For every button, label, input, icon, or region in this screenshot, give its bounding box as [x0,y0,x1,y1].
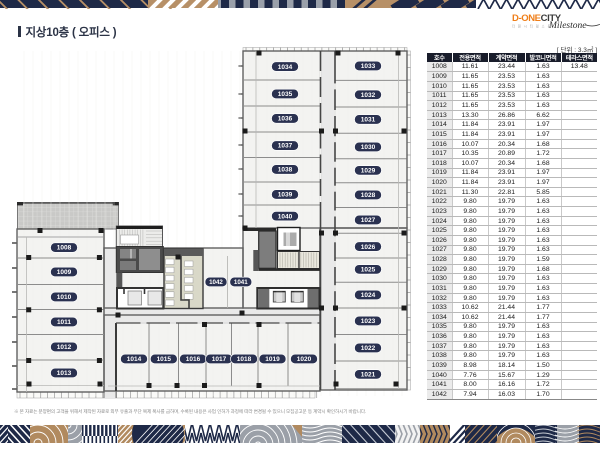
svg-text:1022: 1022 [361,345,376,352]
svg-text:1016: 1016 [186,356,201,363]
svg-text:1021: 1021 [361,372,376,379]
svg-text:1029: 1029 [361,168,376,175]
svg-text:1014: 1014 [127,356,142,363]
svg-text:1028: 1028 [361,192,376,199]
svg-text:1042: 1042 [209,279,223,286]
svg-text:1018: 1018 [237,356,252,363]
svg-text:1020: 1020 [297,356,312,363]
svg-text:1036: 1036 [278,116,293,123]
svg-text:1017: 1017 [212,356,227,363]
svg-text:1038: 1038 [278,167,293,174]
svg-text:1039: 1039 [278,192,293,199]
svg-text:1013: 1013 [57,370,72,377]
svg-text:1011: 1011 [57,319,71,326]
svg-text:1026: 1026 [361,244,376,251]
svg-text:1034: 1034 [278,64,293,71]
svg-text:1012: 1012 [57,344,72,351]
svg-text:1032: 1032 [361,92,376,99]
svg-text:1008: 1008 [57,245,72,252]
svg-text:1033: 1033 [361,63,376,70]
svg-text:1023: 1023 [361,318,376,325]
svg-text:1015: 1015 [157,356,172,363]
svg-text:1037: 1037 [278,143,293,150]
svg-text:1024: 1024 [361,292,376,299]
svg-text:1009: 1009 [57,269,72,276]
svg-text:1025: 1025 [361,267,376,274]
svg-text:1030: 1030 [361,144,376,151]
svg-text:1010: 1010 [57,294,72,301]
svg-text:1031: 1031 [361,117,376,124]
svg-text:1041: 1041 [234,279,248,286]
svg-text:1027: 1027 [361,217,376,224]
svg-text:1040: 1040 [278,213,293,220]
svg-text:1035: 1035 [278,91,293,98]
svg-text:1019: 1019 [265,356,280,363]
